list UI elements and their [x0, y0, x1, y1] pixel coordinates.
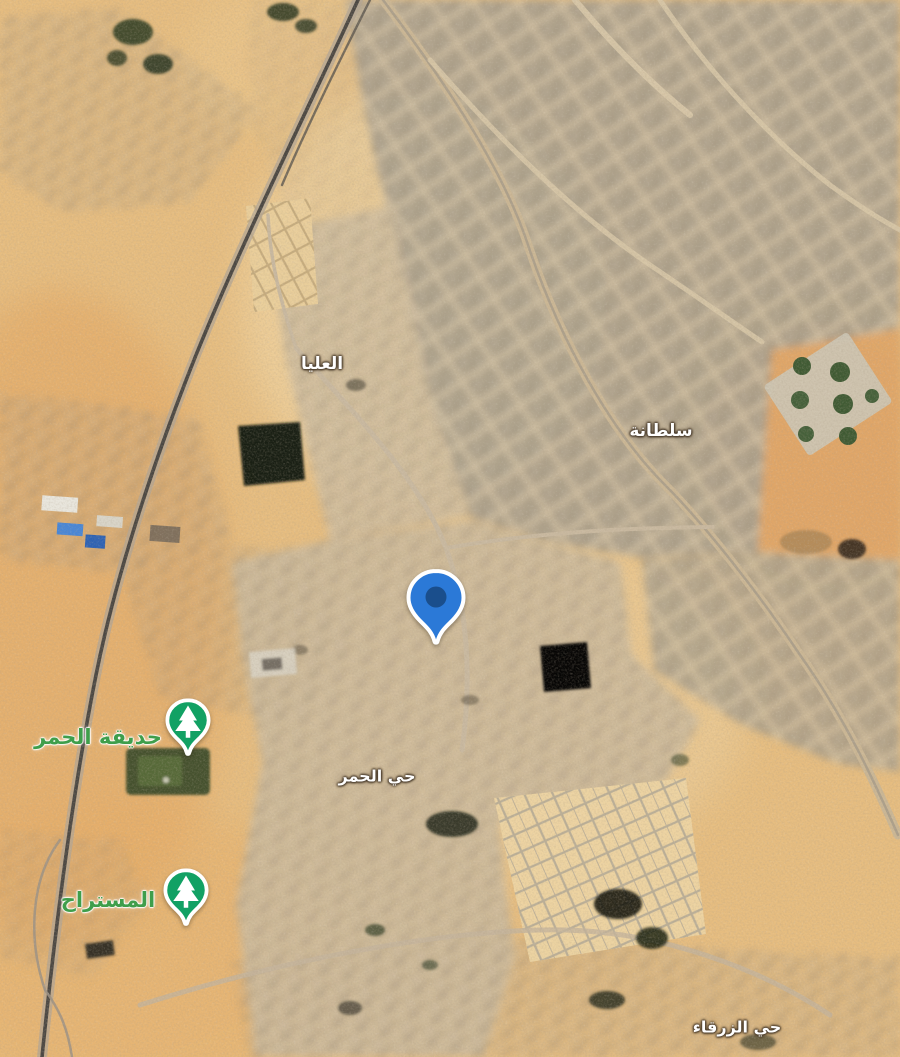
park-label-hadiqat-alhamar[interactable]: حديقة الحمر — [34, 725, 162, 749]
map-canvas[interactable]: العليا سلطانة حي الحمر حي الزرقاء حديقة … — [0, 0, 900, 1057]
park-marker-hadiqat-alhamar[interactable] — [164, 698, 212, 758]
place-label-hay-alhamar[interactable]: حي الحمر — [339, 767, 416, 786]
pin-inner-dot — [426, 587, 447, 608]
park-marker-almustarah[interactable] — [162, 868, 210, 928]
place-label-alolaya[interactable]: العليا — [301, 354, 343, 374]
place-label-sultanah[interactable]: سلطانة — [629, 421, 692, 441]
place-label-hay-azzarqa[interactable]: حي الزرقاء — [693, 1018, 782, 1037]
selected-location-pin[interactable] — [404, 568, 468, 648]
park-label-almustarah[interactable]: المستراح — [61, 888, 156, 912]
